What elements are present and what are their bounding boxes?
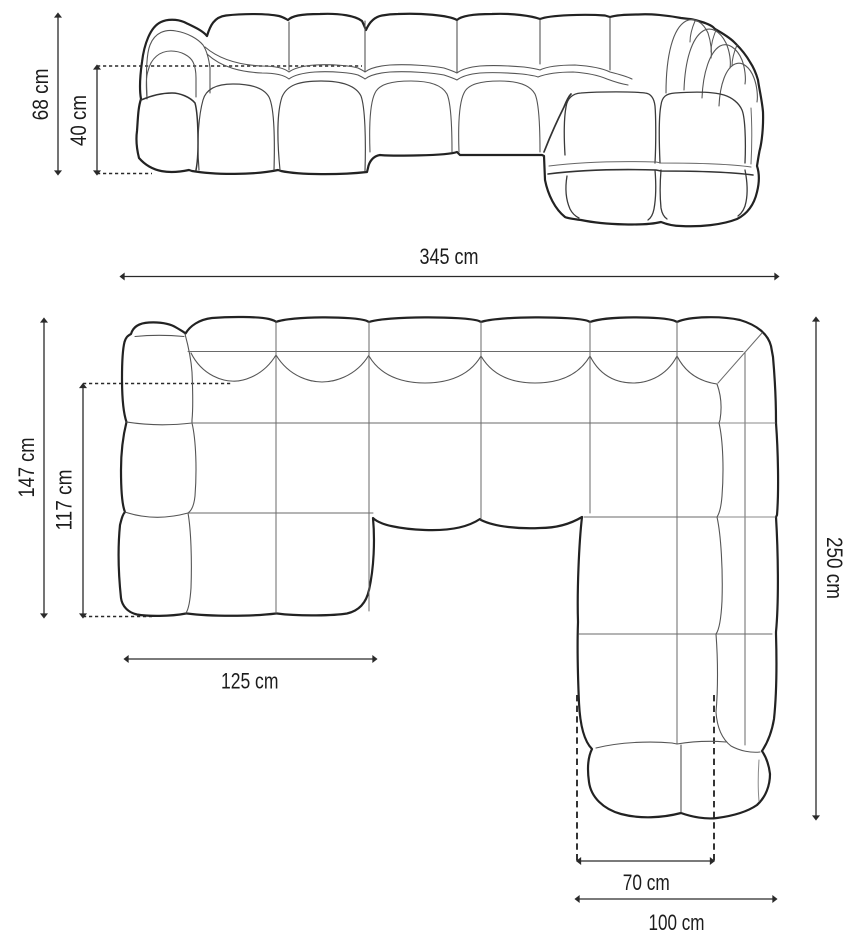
svg-text:147 cm: 147 cm [14, 438, 39, 498]
svg-text:345 cm: 345 cm [420, 244, 479, 269]
svg-text:70 cm: 70 cm [623, 870, 670, 895]
svg-text:40 cm: 40 cm [66, 95, 91, 146]
svg-text:100 cm: 100 cm [649, 910, 705, 935]
svg-text:125 cm: 125 cm [221, 669, 279, 694]
svg-text:68 cm: 68 cm [28, 68, 53, 120]
svg-text:117 cm: 117 cm [52, 470, 77, 531]
svg-text:250 cm: 250 cm [822, 537, 847, 599]
